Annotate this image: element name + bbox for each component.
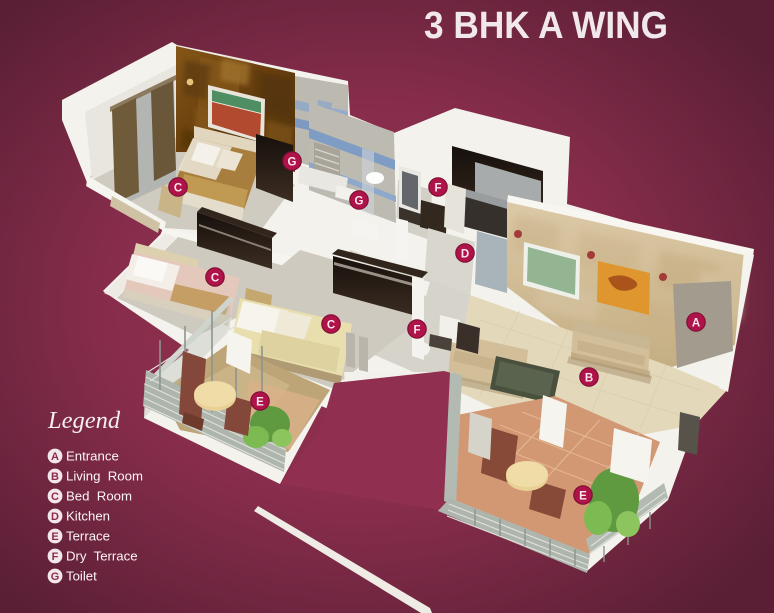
svg-text:F: F bbox=[52, 551, 59, 563]
svg-text:Bed Room: Bed Room bbox=[66, 489, 132, 504]
svg-text:Legend: Legend bbox=[47, 407, 121, 434]
svg-text:C: C bbox=[211, 273, 219, 285]
svg-text:Living Room: Living Room bbox=[66, 469, 143, 484]
svg-text:A: A bbox=[51, 451, 59, 463]
svg-text:D: D bbox=[461, 249, 469, 261]
svg-text:D: D bbox=[51, 511, 59, 523]
svg-text:G: G bbox=[51, 571, 60, 583]
svg-text:Terrace: Terrace bbox=[66, 529, 110, 544]
svg-text:G: G bbox=[355, 196, 364, 208]
svg-text:C: C bbox=[174, 183, 182, 195]
svg-text:E: E bbox=[579, 491, 587, 503]
svg-text:Kitchen: Kitchen bbox=[66, 509, 110, 524]
svg-text:3 BHK A WING: 3 BHK A WING bbox=[424, 5, 668, 47]
svg-text:C: C bbox=[51, 491, 59, 503]
svg-text:F: F bbox=[434, 183, 441, 195]
svg-text:C: C bbox=[327, 320, 335, 332]
svg-text:Dry Terrace: Dry Terrace bbox=[66, 549, 138, 564]
svg-text:G: G bbox=[288, 157, 297, 169]
svg-text:A: A bbox=[692, 318, 700, 330]
svg-text:E: E bbox=[51, 531, 58, 543]
svg-text:B: B bbox=[585, 373, 593, 385]
svg-text:E: E bbox=[256, 397, 264, 409]
svg-text:Entrance: Entrance bbox=[66, 449, 119, 464]
svg-text:F: F bbox=[413, 325, 420, 337]
svg-text:Toilet: Toilet bbox=[66, 569, 97, 584]
svg-text:B: B bbox=[51, 471, 59, 483]
